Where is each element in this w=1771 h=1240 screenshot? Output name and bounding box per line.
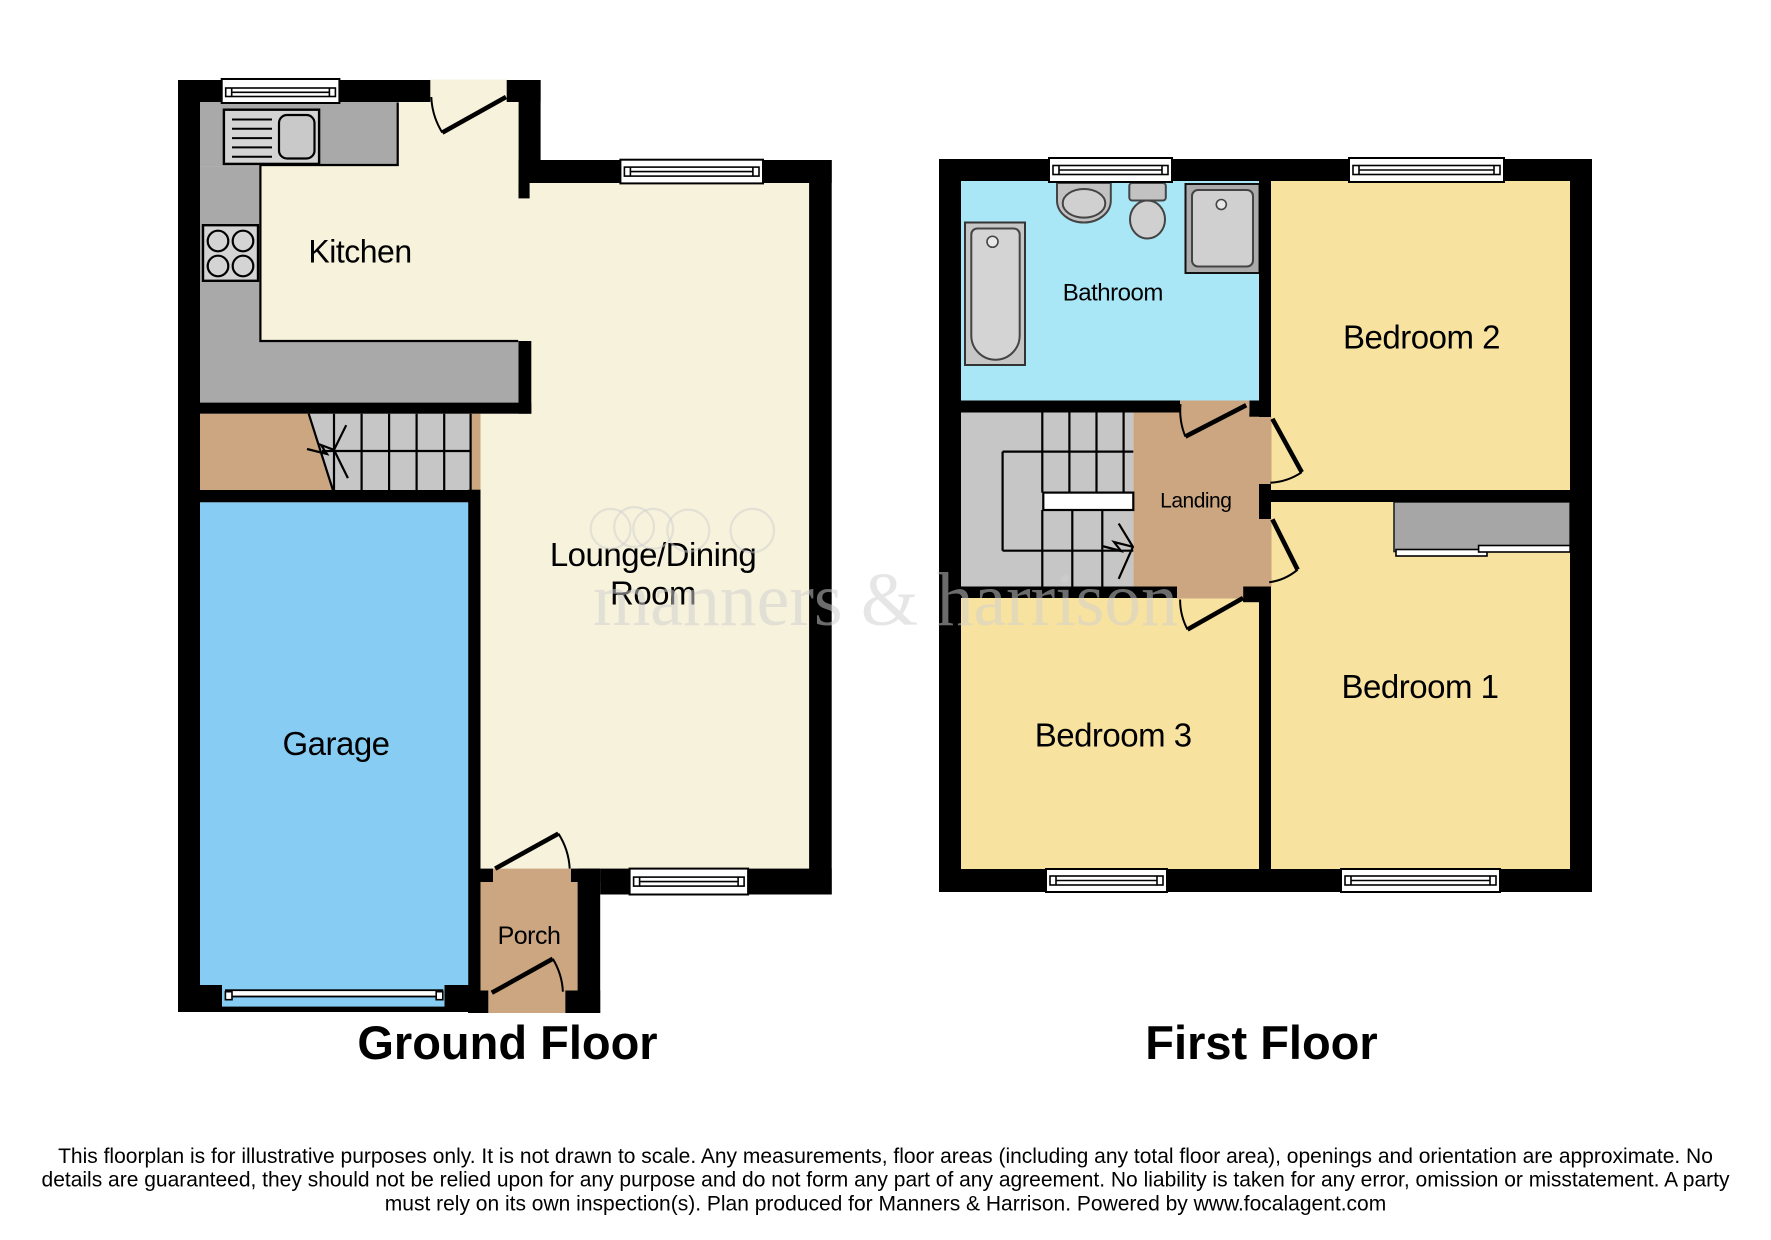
svg-text:Bedroom 2: Bedroom 2	[1343, 318, 1500, 355]
svg-text:First Floor: First Floor	[1145, 1016, 1377, 1069]
svg-text:Ground Floor: Ground Floor	[357, 1016, 657, 1069]
svg-text:Landing: Landing	[1160, 490, 1231, 513]
svg-text:manners & harrison: manners & harrison	[593, 558, 1178, 642]
svg-text:Bedroom 1: Bedroom 1	[1342, 668, 1499, 705]
svg-text:Kitchen: Kitchen	[308, 234, 411, 270]
svg-text:details are guaranteed, they s: details are guaranteed, they should not …	[42, 1169, 1730, 1192]
svg-text:Garage: Garage	[282, 725, 389, 762]
svg-text:Porch: Porch	[498, 922, 561, 950]
svg-text:must rely on its own inspectio: must rely on its own inspection(s). Plan…	[385, 1193, 1386, 1216]
svg-text:Bathroom: Bathroom	[1063, 279, 1163, 306]
svg-text:Bedroom 3: Bedroom 3	[1035, 717, 1192, 754]
svg-text:This floorplan is for illustra: This floorplan is for illustrative purpo…	[58, 1145, 1713, 1168]
